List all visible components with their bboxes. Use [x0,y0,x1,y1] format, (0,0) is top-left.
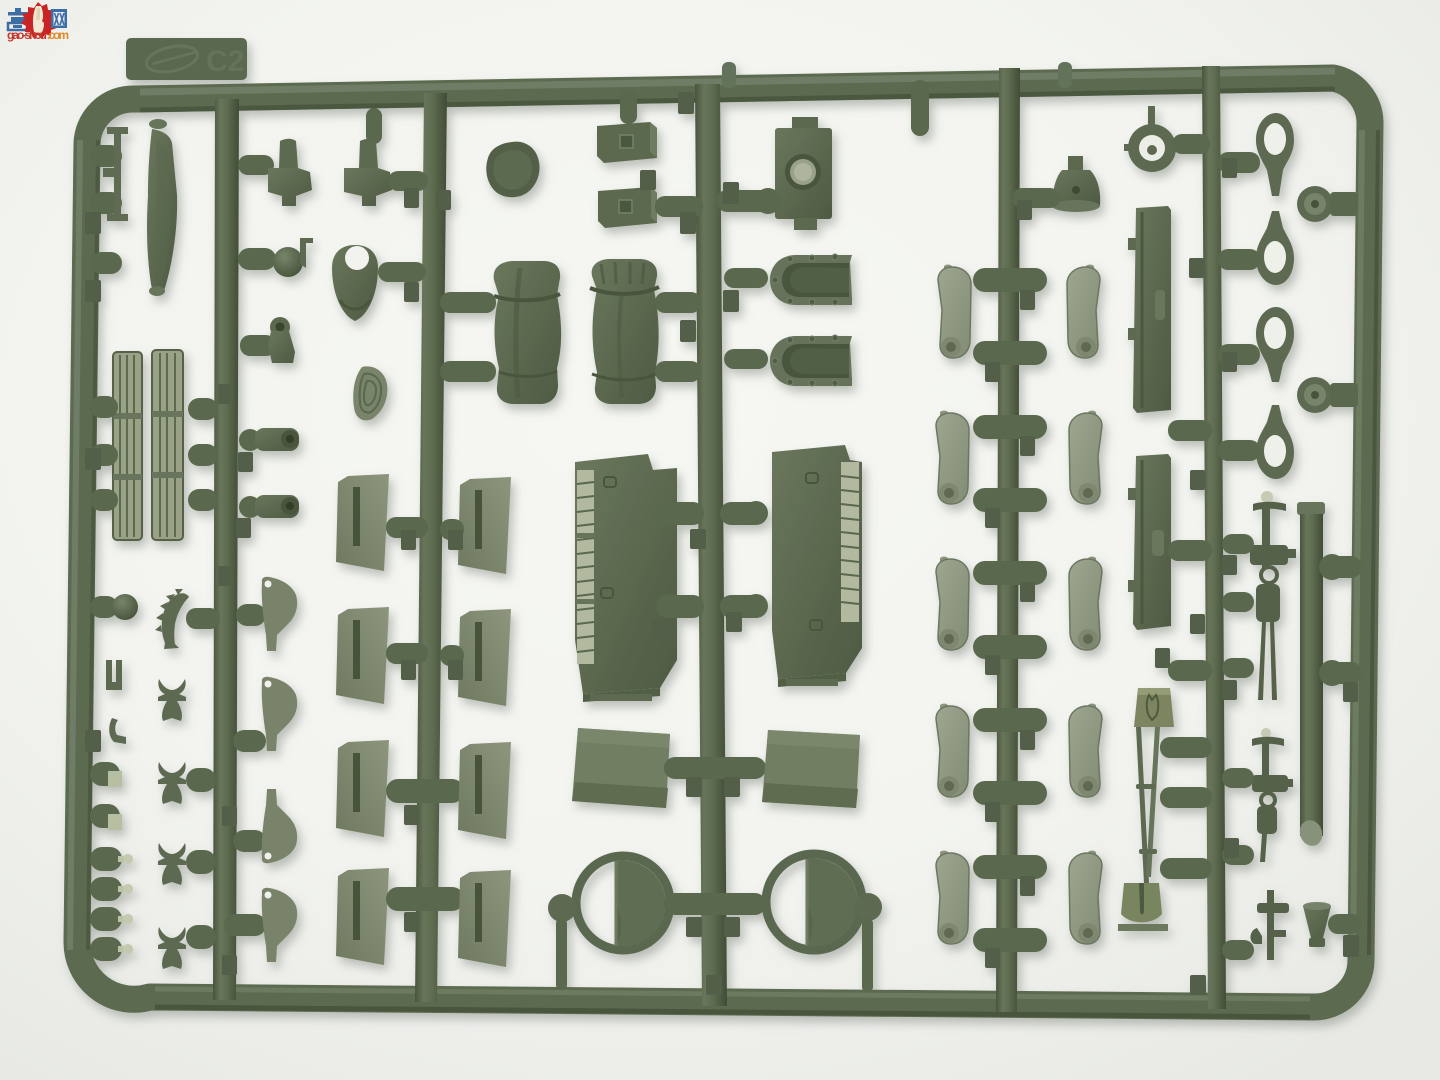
svg-text:.com: .com [47,28,69,42]
svg-text:gao-shou: gao-shou [7,28,47,42]
svg-text:C2: C2 [206,45,244,78]
